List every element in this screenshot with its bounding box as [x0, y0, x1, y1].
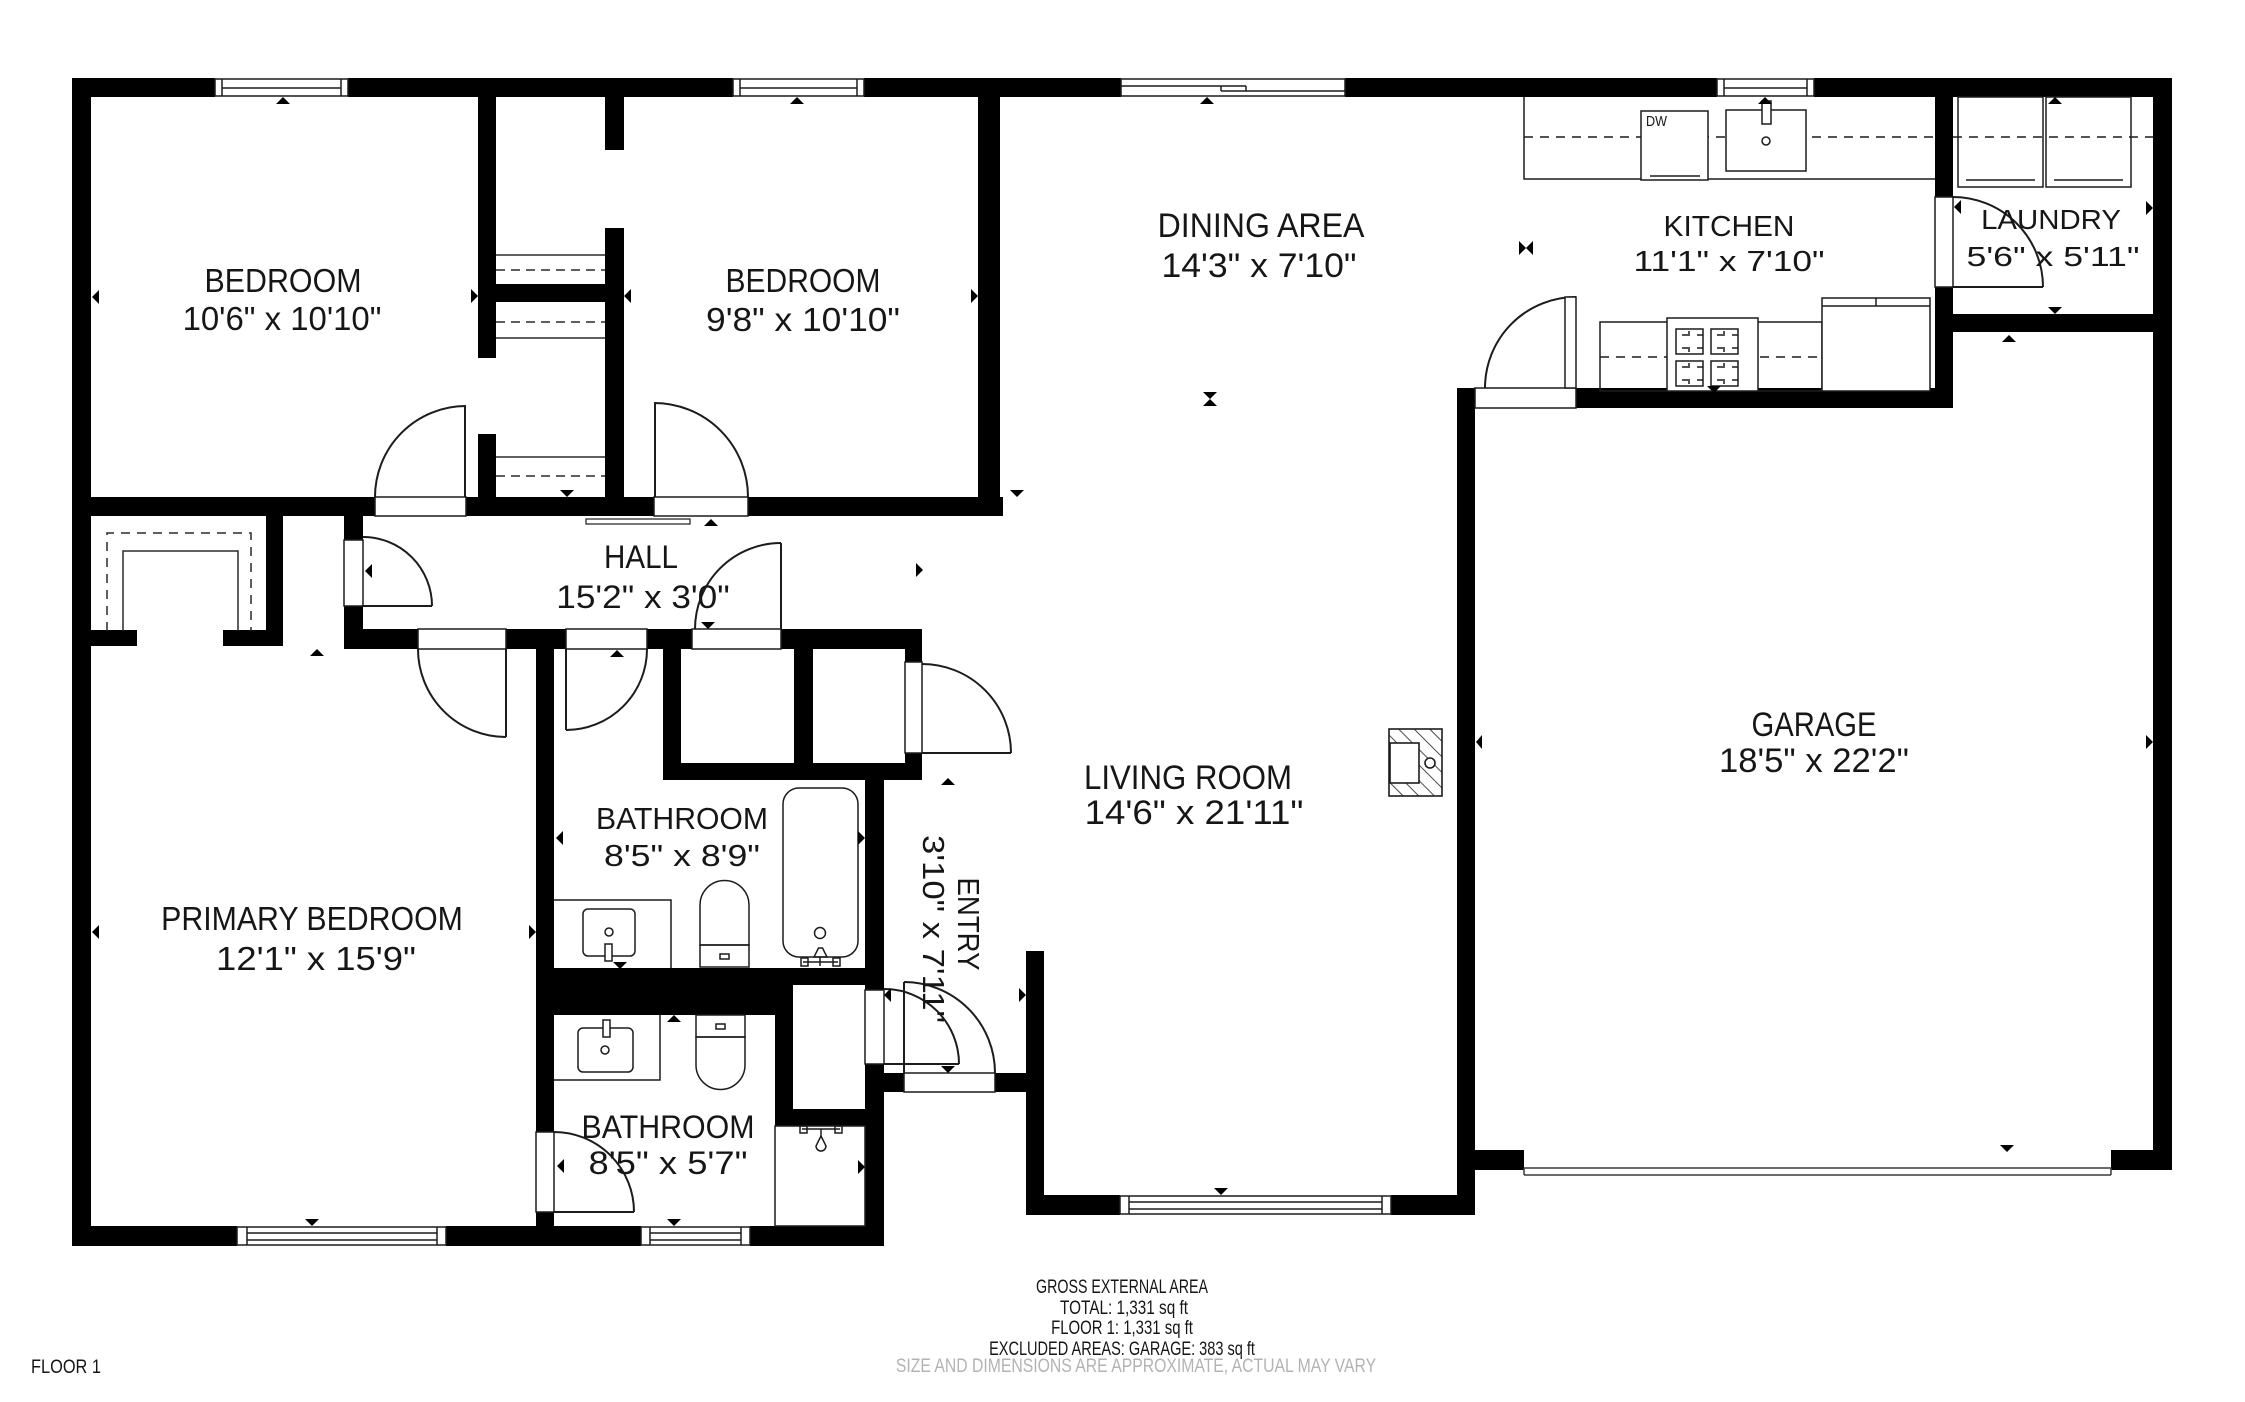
svg-text:BEDROOM: BEDROOM: [204, 262, 361, 299]
svg-text:LIVING ROOM: LIVING ROOM: [1084, 758, 1292, 797]
svg-text:HALL: HALL: [604, 539, 678, 575]
svg-text:9'8" x 10'10": 9'8" x 10'10": [706, 302, 900, 339]
svg-text:8'5" x 5'7": 8'5" x 5'7": [588, 1146, 747, 1181]
svg-text:BATHROOM: BATHROOM: [582, 1109, 755, 1145]
svg-text:GARAGE: GARAGE: [1752, 705, 1877, 744]
svg-text:11'1" x 7'10": 11'1" x 7'10": [1634, 245, 1825, 277]
svg-text:FLOOR 1: FLOOR 1: [31, 1356, 101, 1378]
svg-text:FLOOR 1: 1,331 sq ft: FLOOR 1: 1,331 sq ft: [1051, 1317, 1193, 1338]
svg-text:KITCHEN: KITCHEN: [1664, 210, 1795, 243]
svg-text:GROSS EXTERNAL AREA: GROSS EXTERNAL AREA: [1036, 1276, 1209, 1297]
svg-text:TOTAL: 1,331 sq ft: TOTAL: 1,331 sq ft: [1060, 1296, 1188, 1318]
svg-text:BEDROOM: BEDROOM: [726, 262, 881, 300]
svg-text:ENTRY: ENTRY: [951, 878, 986, 971]
svg-text:10'6" x 10'10": 10'6" x 10'10": [183, 300, 382, 337]
svg-text:15'2" x 3'0": 15'2" x 3'0": [556, 580, 729, 615]
svg-text:3'10" x 7'11": 3'10" x 7'11": [916, 835, 951, 1023]
svg-text:14'3" x 7'10": 14'3" x 7'10": [1161, 248, 1356, 285]
svg-text:LAUNDRY: LAUNDRY: [1981, 205, 2121, 236]
svg-text:DW: DW: [1646, 112, 1668, 129]
svg-text:12'1" x 15'9": 12'1" x 15'9": [216, 942, 416, 978]
svg-text:5'6" x 5'11": 5'6" x 5'11": [1966, 241, 2139, 272]
svg-text:DINING AREA: DINING AREA: [1158, 207, 1365, 245]
svg-text:PRIMARY BEDROOM: PRIMARY BEDROOM: [161, 900, 463, 938]
svg-text:BATHROOM: BATHROOM: [596, 802, 768, 836]
svg-text:14'6" x 21'11": 14'6" x 21'11": [1085, 794, 1304, 831]
svg-text:8'5" x 8'9": 8'5" x 8'9": [604, 839, 760, 873]
svg-text:SIZE AND DIMENSIONS ARE APPROX: SIZE AND DIMENSIONS ARE APPROXIMATE, ACT…: [896, 1355, 1377, 1377]
svg-text:18'5" x 22'2": 18'5" x 22'2": [1719, 742, 1909, 780]
